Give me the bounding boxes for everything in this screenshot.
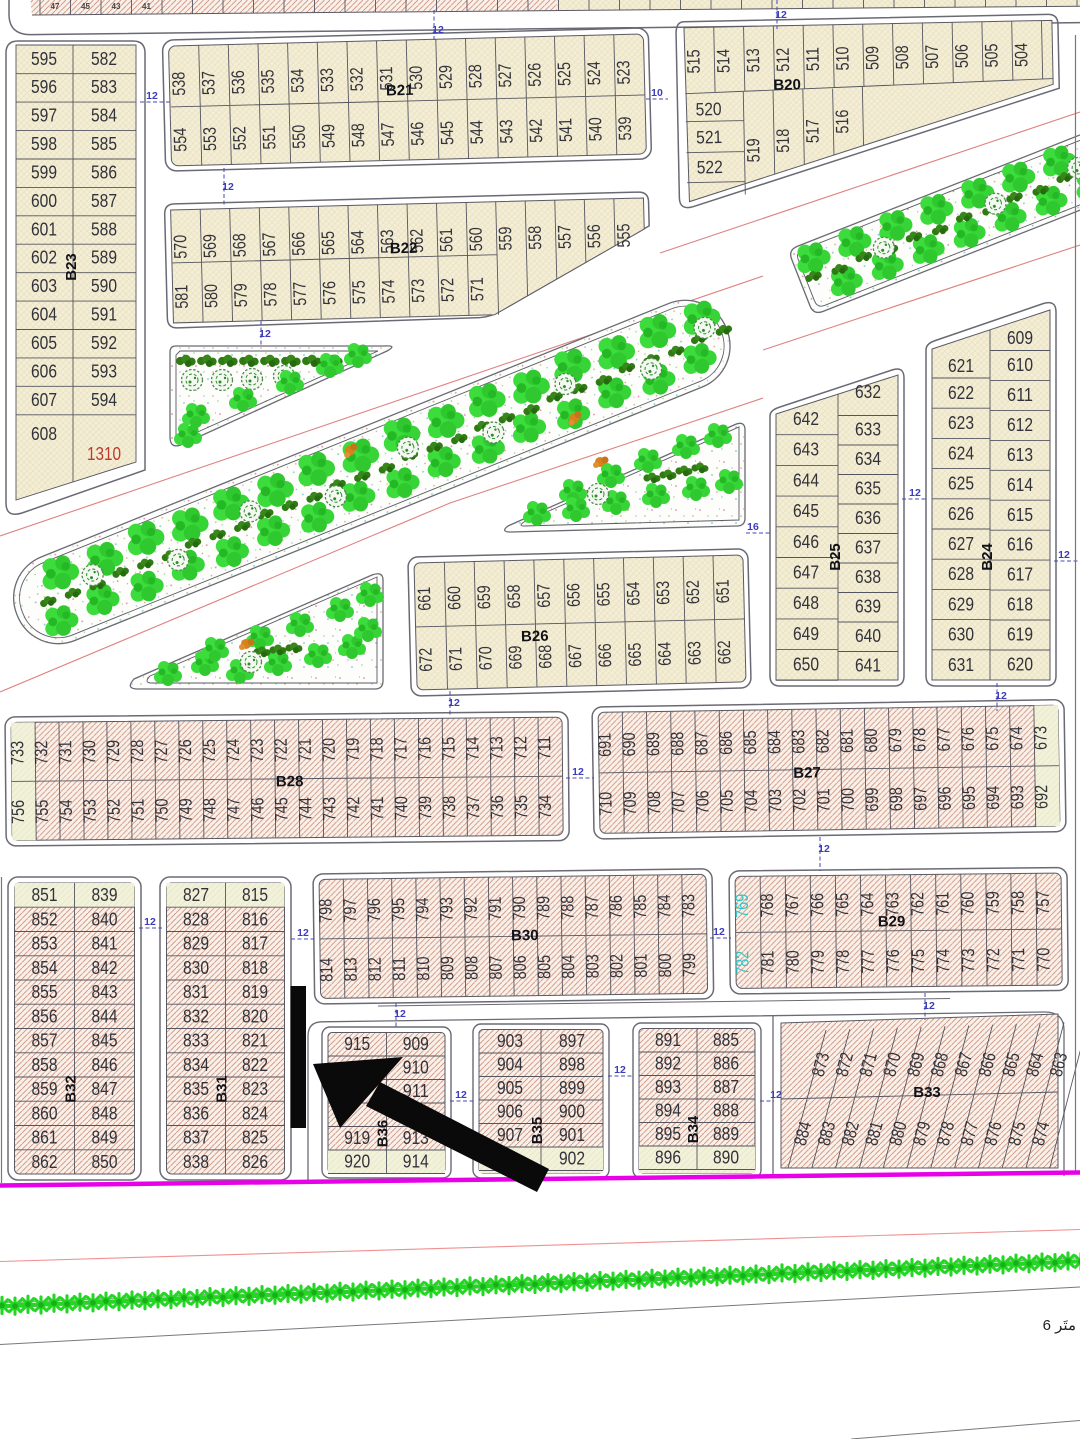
svg-text:713: 713 — [486, 736, 506, 760]
svg-text:732: 732 — [31, 741, 51, 765]
svg-text:831: 831 — [183, 982, 209, 1002]
svg-text:12: 12 — [144, 916, 156, 928]
svg-text:730: 730 — [79, 740, 99, 764]
svg-text:790: 790 — [509, 896, 529, 920]
svg-text:658: 658 — [504, 584, 525, 608]
svg-text:796: 796 — [364, 898, 384, 922]
svg-text:893: 893 — [655, 1077, 681, 1097]
svg-text:43: 43 — [112, 2, 121, 11]
svg-text:685: 685 — [740, 730, 760, 754]
svg-text:632: 632 — [855, 382, 881, 402]
svg-text:623: 623 — [948, 413, 974, 433]
svg-text:815: 815 — [242, 885, 268, 905]
svg-text:901: 901 — [559, 1125, 585, 1145]
svg-text:897: 897 — [559, 1031, 585, 1051]
svg-text:724: 724 — [223, 739, 243, 763]
svg-text:706: 706 — [692, 790, 712, 814]
svg-text:47: 47 — [51, 2, 60, 11]
svg-text:744: 744 — [295, 797, 315, 821]
svg-text:616: 616 — [1007, 535, 1033, 555]
svg-text:775: 775 — [908, 949, 928, 973]
svg-text:506: 506 — [951, 44, 971, 68]
svg-text:798: 798 — [315, 899, 335, 923]
svg-text:615: 615 — [1007, 505, 1033, 525]
svg-text:662: 662 — [714, 640, 735, 664]
svg-text:567: 567 — [259, 232, 280, 256]
svg-text:640: 640 — [855, 626, 881, 646]
svg-text:12: 12 — [614, 1064, 626, 1076]
svg-text:636: 636 — [855, 508, 881, 528]
svg-text:794: 794 — [412, 897, 432, 921]
svg-text:705: 705 — [717, 790, 737, 814]
svg-text:650: 650 — [793, 655, 819, 675]
svg-text:568: 568 — [229, 233, 250, 257]
svg-text:822: 822 — [242, 1055, 268, 1075]
svg-text:505: 505 — [981, 43, 1001, 67]
svg-text:B32: B32 — [63, 1075, 80, 1103]
svg-text:919: 919 — [344, 1128, 370, 1148]
svg-text:910: 910 — [403, 1058, 429, 1078]
svg-text:664: 664 — [654, 642, 675, 666]
svg-text:B30: B30 — [511, 927, 539, 944]
svg-text:690: 690 — [619, 732, 639, 756]
svg-text:885: 885 — [713, 1030, 739, 1050]
svg-text:848: 848 — [92, 1103, 118, 1123]
svg-text:852: 852 — [32, 909, 58, 929]
svg-text:788: 788 — [557, 896, 577, 920]
svg-text:599: 599 — [31, 163, 57, 183]
svg-text:514: 514 — [713, 49, 733, 73]
svg-text:587: 587 — [91, 191, 117, 211]
svg-text:749: 749 — [175, 798, 195, 822]
svg-text:522: 522 — [697, 157, 723, 178]
svg-text:786: 786 — [606, 895, 626, 919]
svg-text:736: 736 — [487, 795, 507, 819]
svg-text:592: 592 — [91, 333, 117, 353]
svg-text:12: 12 — [455, 1089, 467, 1101]
svg-text:686: 686 — [716, 731, 736, 755]
svg-text:661: 661 — [414, 586, 435, 610]
svg-text:789: 789 — [533, 896, 553, 920]
svg-text:614: 614 — [1007, 475, 1033, 495]
svg-text:759: 759 — [983, 891, 1003, 915]
svg-text:858: 858 — [32, 1055, 58, 1075]
svg-text:511: 511 — [802, 47, 822, 71]
svg-text:680: 680 — [861, 728, 881, 752]
svg-text:717: 717 — [391, 737, 411, 761]
svg-text:813: 813 — [340, 957, 360, 981]
svg-text:746: 746 — [247, 797, 267, 821]
svg-text:887: 887 — [713, 1077, 739, 1097]
svg-text:832: 832 — [183, 1006, 209, 1026]
svg-text:833: 833 — [183, 1031, 209, 1051]
svg-text:709: 709 — [620, 791, 640, 815]
svg-text:767: 767 — [782, 893, 802, 917]
svg-text:10: 10 — [651, 87, 663, 99]
svg-text:584: 584 — [91, 106, 117, 126]
svg-text:526: 526 — [524, 63, 545, 87]
svg-text:570: 570 — [170, 234, 191, 258]
svg-text:12: 12 — [572, 766, 584, 778]
svg-text:684: 684 — [764, 730, 784, 754]
svg-text:6 متَر: 6 متَر — [1043, 1317, 1076, 1334]
svg-text:588: 588 — [91, 219, 117, 239]
svg-text:596: 596 — [31, 77, 57, 97]
svg-text:898: 898 — [559, 1055, 585, 1075]
svg-text:544: 544 — [466, 120, 487, 144]
svg-text:12: 12 — [394, 1008, 406, 1020]
svg-text:666: 666 — [595, 643, 616, 667]
svg-text:843: 843 — [92, 982, 118, 1002]
svg-text:608: 608 — [31, 424, 57, 444]
svg-text:773: 773 — [958, 948, 978, 972]
svg-text:517: 517 — [802, 119, 822, 143]
svg-text:782: 782 — [732, 951, 752, 975]
svg-text:814: 814 — [316, 958, 336, 982]
svg-text:692: 692 — [1031, 785, 1051, 809]
svg-text:819: 819 — [242, 982, 268, 1002]
svg-text:12: 12 — [259, 328, 271, 340]
svg-text:590: 590 — [91, 276, 117, 296]
svg-text:807: 807 — [485, 955, 505, 979]
svg-text:816: 816 — [242, 909, 268, 929]
svg-text:757: 757 — [1033, 891, 1053, 915]
svg-text:542: 542 — [526, 118, 547, 142]
svg-text:585: 585 — [91, 134, 117, 154]
svg-text:539: 539 — [615, 116, 636, 140]
svg-text:557: 557 — [554, 225, 575, 249]
svg-text:906: 906 — [497, 1102, 523, 1122]
svg-text:45: 45 — [81, 2, 90, 11]
svg-text:914: 914 — [403, 1152, 429, 1172]
svg-text:748: 748 — [199, 798, 219, 822]
svg-text:683: 683 — [788, 730, 808, 754]
svg-text:771: 771 — [1008, 948, 1028, 972]
svg-text:902: 902 — [559, 1149, 585, 1169]
svg-text:792: 792 — [461, 897, 481, 921]
svg-text:578: 578 — [260, 282, 281, 306]
svg-text:1310: 1310 — [87, 444, 121, 464]
svg-text:915: 915 — [344, 1034, 370, 1054]
svg-text:644: 644 — [793, 470, 819, 490]
svg-text:601: 601 — [31, 219, 57, 239]
svg-text:B34: B34 — [685, 1115, 702, 1143]
svg-text:624: 624 — [948, 443, 974, 463]
svg-text:793: 793 — [436, 897, 456, 921]
svg-text:835: 835 — [183, 1079, 209, 1099]
svg-text:559: 559 — [495, 226, 516, 250]
svg-text:525: 525 — [554, 62, 575, 86]
svg-text:799: 799 — [679, 953, 699, 977]
svg-text:846: 846 — [92, 1055, 118, 1075]
svg-text:809: 809 — [437, 956, 457, 980]
svg-text:509: 509 — [862, 46, 882, 70]
svg-text:701: 701 — [813, 788, 833, 812]
svg-text:593: 593 — [91, 361, 117, 381]
svg-text:825: 825 — [242, 1128, 268, 1148]
svg-text:821: 821 — [242, 1031, 268, 1051]
svg-text:607: 607 — [31, 390, 57, 410]
svg-text:742: 742 — [343, 797, 363, 821]
svg-text:845: 845 — [92, 1031, 118, 1051]
svg-text:817: 817 — [242, 934, 268, 954]
svg-text:534: 534 — [287, 69, 308, 93]
svg-text:533: 533 — [317, 68, 338, 92]
svg-text:750: 750 — [151, 798, 171, 822]
svg-text:528: 528 — [465, 64, 486, 88]
svg-text:620: 620 — [1007, 655, 1033, 675]
svg-text:627: 627 — [948, 534, 974, 554]
svg-text:770: 770 — [1033, 948, 1053, 972]
svg-text:725: 725 — [199, 739, 219, 763]
svg-text:687: 687 — [691, 731, 711, 755]
svg-text:743: 743 — [319, 797, 339, 821]
svg-text:689: 689 — [643, 732, 663, 756]
svg-text:900: 900 — [559, 1102, 585, 1122]
svg-text:679: 679 — [885, 728, 905, 752]
svg-text:779: 779 — [808, 950, 828, 974]
svg-text:628: 628 — [948, 564, 974, 584]
svg-text:824: 824 — [242, 1103, 268, 1123]
svg-text:12: 12 — [222, 181, 234, 193]
svg-text:521: 521 — [696, 127, 722, 148]
svg-text:726: 726 — [175, 739, 195, 763]
svg-text:656: 656 — [563, 583, 584, 607]
svg-text:12: 12 — [909, 487, 921, 499]
svg-text:671: 671 — [445, 647, 466, 671]
svg-text:903: 903 — [497, 1031, 523, 1051]
svg-text:756: 756 — [8, 800, 28, 824]
svg-text:751: 751 — [128, 799, 148, 823]
svg-text:518: 518 — [773, 129, 793, 153]
svg-text:721: 721 — [295, 738, 315, 762]
svg-text:754: 754 — [56, 799, 76, 823]
svg-text:851: 851 — [32, 885, 58, 905]
svg-text:780: 780 — [783, 950, 803, 974]
svg-text:674: 674 — [1006, 726, 1026, 750]
svg-text:857: 857 — [32, 1031, 58, 1051]
svg-text:826: 826 — [242, 1152, 268, 1172]
svg-text:507: 507 — [922, 45, 942, 69]
svg-text:520: 520 — [695, 99, 721, 120]
svg-text:772: 772 — [983, 948, 1003, 972]
svg-text:642: 642 — [793, 409, 819, 429]
svg-text:853: 853 — [32, 934, 58, 954]
svg-text:920: 920 — [344, 1152, 370, 1172]
svg-text:800: 800 — [655, 953, 675, 977]
svg-text:665: 665 — [625, 642, 646, 666]
svg-text:524: 524 — [584, 61, 605, 85]
svg-text:598: 598 — [31, 134, 57, 154]
svg-text:694: 694 — [983, 786, 1003, 810]
svg-text:861: 861 — [32, 1128, 58, 1148]
svg-text:B28: B28 — [276, 773, 304, 790]
svg-text:678: 678 — [909, 728, 929, 752]
svg-text:510: 510 — [832, 46, 852, 70]
svg-text:904: 904 — [497, 1055, 523, 1075]
svg-text:810: 810 — [413, 956, 433, 980]
svg-text:804: 804 — [558, 955, 578, 979]
svg-text:621: 621 — [948, 356, 974, 376]
svg-text:581: 581 — [171, 284, 192, 308]
svg-text:811: 811 — [389, 957, 409, 981]
svg-text:718: 718 — [367, 737, 387, 761]
svg-text:827: 827 — [183, 885, 209, 905]
svg-text:812: 812 — [365, 957, 385, 981]
svg-text:797: 797 — [340, 898, 360, 922]
svg-text:795: 795 — [388, 898, 408, 922]
svg-text:582: 582 — [91, 49, 117, 69]
svg-text:625: 625 — [948, 474, 974, 494]
svg-text:719: 719 — [343, 738, 363, 762]
svg-text:538: 538 — [168, 72, 189, 96]
svg-text:646: 646 — [793, 532, 819, 552]
svg-text:899: 899 — [559, 1078, 585, 1098]
svg-text:652: 652 — [683, 580, 704, 604]
svg-text:618: 618 — [1007, 595, 1033, 615]
svg-text:711: 711 — [534, 736, 554, 760]
svg-text:654: 654 — [623, 581, 644, 605]
svg-text:12: 12 — [923, 1000, 935, 1012]
svg-text:602: 602 — [31, 248, 57, 268]
svg-text:760: 760 — [957, 891, 977, 915]
svg-text:B36: B36 — [375, 1120, 392, 1148]
svg-text:839: 839 — [92, 885, 118, 905]
svg-text:765: 765 — [832, 893, 852, 917]
svg-text:619: 619 — [1007, 625, 1033, 645]
svg-text:635: 635 — [855, 479, 881, 499]
svg-text:862: 862 — [32, 1152, 58, 1172]
svg-text:710: 710 — [595, 792, 615, 816]
svg-text:591: 591 — [91, 305, 117, 325]
svg-text:720: 720 — [319, 738, 339, 762]
svg-text:849: 849 — [92, 1128, 118, 1148]
svg-text:697: 697 — [910, 787, 930, 811]
svg-text:594: 594 — [91, 390, 117, 410]
svg-text:729: 729 — [103, 740, 123, 764]
svg-text:728: 728 — [127, 740, 147, 764]
svg-text:513: 513 — [743, 48, 763, 72]
svg-text:830: 830 — [183, 958, 209, 978]
svg-text:572: 572 — [437, 278, 458, 302]
svg-text:576: 576 — [319, 281, 340, 305]
svg-text:12: 12 — [448, 697, 460, 709]
svg-text:895: 895 — [655, 1124, 681, 1144]
svg-text:527: 527 — [495, 63, 516, 87]
svg-text:638: 638 — [855, 567, 881, 587]
svg-text:758: 758 — [1008, 891, 1028, 915]
svg-text:667: 667 — [565, 644, 586, 668]
svg-text:545: 545 — [437, 121, 458, 145]
svg-text:842: 842 — [92, 958, 118, 978]
svg-text:766: 766 — [807, 893, 827, 917]
svg-text:573: 573 — [408, 278, 429, 302]
svg-text:716: 716 — [414, 737, 434, 761]
svg-text:669: 669 — [505, 645, 526, 669]
svg-text:739: 739 — [415, 796, 435, 820]
svg-text:894: 894 — [655, 1101, 681, 1121]
svg-text:595: 595 — [31, 49, 57, 69]
svg-text:755: 755 — [32, 800, 52, 824]
svg-text:549: 549 — [318, 124, 339, 148]
svg-text:774: 774 — [933, 949, 953, 973]
svg-text:781: 781 — [757, 950, 777, 974]
svg-text:704: 704 — [741, 789, 761, 813]
svg-text:532: 532 — [346, 67, 367, 91]
svg-text:12: 12 — [1058, 549, 1070, 561]
svg-text:554: 554 — [170, 128, 191, 152]
svg-text:677: 677 — [933, 727, 953, 751]
svg-text:675: 675 — [982, 727, 1002, 751]
svg-text:634: 634 — [855, 449, 881, 469]
svg-text:16: 16 — [747, 521, 759, 533]
svg-text:886: 886 — [713, 1054, 739, 1074]
svg-text:617: 617 — [1007, 565, 1033, 585]
svg-text:611: 611 — [1007, 385, 1033, 405]
svg-text:583: 583 — [91, 77, 117, 97]
svg-text:693: 693 — [1007, 785, 1027, 809]
svg-text:605: 605 — [31, 333, 57, 353]
svg-text:508: 508 — [892, 45, 912, 69]
svg-text:610: 610 — [1007, 355, 1033, 375]
svg-text:722: 722 — [271, 738, 291, 762]
svg-text:541: 541 — [555, 118, 576, 142]
svg-text:764: 764 — [857, 892, 877, 916]
svg-text:552: 552 — [229, 126, 250, 150]
svg-text:645: 645 — [793, 501, 819, 521]
svg-text:702: 702 — [789, 789, 809, 813]
svg-text:574: 574 — [378, 279, 399, 303]
svg-text:600: 600 — [31, 191, 57, 211]
svg-text:699: 699 — [862, 787, 882, 811]
svg-text:695: 695 — [959, 786, 979, 810]
svg-text:12: 12 — [995, 690, 1007, 702]
svg-text:850: 850 — [92, 1152, 118, 1172]
svg-text:555: 555 — [613, 223, 634, 247]
svg-text:802: 802 — [606, 954, 626, 978]
svg-text:791: 791 — [485, 896, 505, 920]
svg-text:731: 731 — [55, 740, 75, 764]
svg-text:708: 708 — [644, 791, 664, 815]
svg-text:909: 909 — [403, 1034, 429, 1054]
svg-text:B33: B33 — [913, 1084, 941, 1101]
svg-text:546: 546 — [407, 121, 428, 145]
svg-text:703: 703 — [765, 789, 785, 813]
svg-text:820: 820 — [242, 1006, 268, 1026]
svg-text:B20: B20 — [773, 76, 801, 94]
svg-text:504: 504 — [1011, 43, 1031, 67]
svg-text:565: 565 — [318, 231, 339, 255]
svg-text:663: 663 — [684, 641, 705, 665]
svg-text:560: 560 — [466, 227, 487, 251]
svg-text:558: 558 — [525, 226, 546, 250]
svg-text:637: 637 — [855, 538, 881, 558]
svg-text:777: 777 — [858, 949, 878, 973]
svg-text:631: 631 — [948, 655, 974, 675]
svg-text:761: 761 — [932, 892, 952, 916]
svg-text:B25: B25 — [827, 543, 844, 571]
svg-text:769: 769 — [732, 894, 752, 918]
svg-text:603: 603 — [31, 276, 57, 296]
svg-text:613: 613 — [1007, 445, 1033, 465]
svg-text:515: 515 — [683, 49, 703, 73]
svg-text:734: 734 — [535, 795, 555, 819]
svg-text:785: 785 — [630, 895, 650, 919]
svg-text:612: 612 — [1007, 415, 1033, 435]
svg-text:633: 633 — [855, 420, 881, 440]
svg-text:553: 553 — [200, 127, 221, 151]
svg-text:12: 12 — [146, 90, 158, 102]
